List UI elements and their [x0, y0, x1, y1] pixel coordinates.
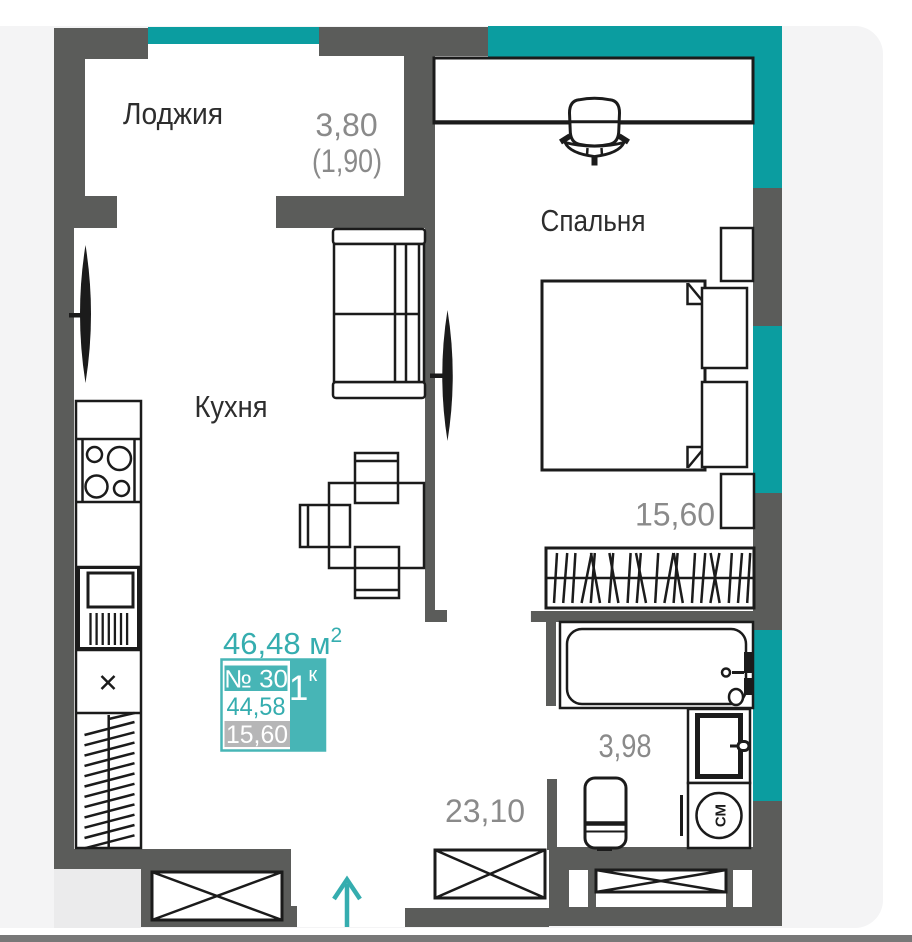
svg-text:23,10: 23,10	[445, 793, 525, 829]
svg-text:Кухня: Кухня	[195, 389, 268, 424]
svg-text:46,48 м2: 46,48 м2	[223, 624, 342, 661]
svg-text:15,60: 15,60	[635, 497, 715, 533]
svg-text:СМ: СМ	[713, 804, 730, 827]
svg-text:44,58: 44,58	[227, 693, 286, 721]
svg-text:3,80: 3,80	[315, 107, 377, 143]
svg-text:Лоджия: Лоджия	[123, 96, 223, 131]
svg-text:15,60: 15,60	[226, 721, 288, 749]
svg-text:№ 30: № 30	[224, 666, 288, 694]
svg-text:3,98: 3,98	[599, 728, 652, 764]
svg-text:Спальня: Спальня	[541, 203, 646, 238]
svg-text:(1,90): (1,90)	[312, 143, 382, 179]
